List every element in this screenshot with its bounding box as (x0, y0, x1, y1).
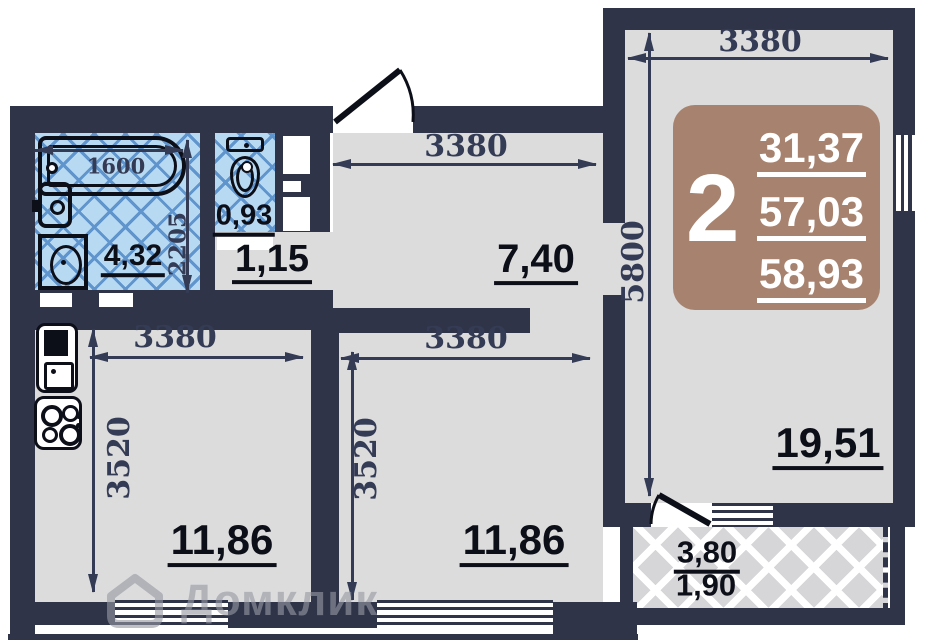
area-label-corridor: 7,40 (494, 239, 578, 285)
summary-badge: 2 31,37 57,03 58,93 (673, 105, 880, 310)
house-logo-icon (103, 572, 167, 630)
wall-segment (603, 503, 651, 527)
area-label-bathroom: 4,32 (101, 241, 165, 277)
bedroom-door-opening (530, 308, 603, 333)
balcony-side-wall (620, 527, 633, 640)
balcony-parapet (633, 608, 890, 625)
total-area-value: 58,93 (757, 253, 866, 303)
wall-segment (10, 106, 35, 638)
dim-label-kitchen-depth: 3520 (105, 416, 135, 500)
area-label-bedroom: 11,86 (460, 519, 569, 567)
wall-segment (8, 634, 638, 640)
area-label-kitchen: 11,86 (168, 519, 277, 567)
bathroom-sink-icon (38, 182, 72, 228)
bedroom-window (377, 600, 553, 625)
stove-icon (34, 396, 82, 450)
wall-niche (40, 293, 72, 307)
balcony-door-icon (645, 478, 715, 530)
wall-segment (893, 211, 915, 527)
vent-opening (283, 197, 310, 231)
kitchen-sink-icon (36, 323, 78, 393)
room-count: 2 (686, 161, 739, 257)
dim-label-corridor: 3380 (424, 132, 508, 162)
wall-segment (773, 503, 915, 527)
dim-line-bedroom-width (341, 357, 590, 360)
dim-label-bathtub: 1600 (87, 156, 145, 177)
toilet-tank-icon (226, 137, 264, 152)
wall-segment (893, 8, 915, 135)
dim-label-living-length: 5800 (619, 220, 649, 304)
wall-segment (603, 8, 625, 223)
entrance-door-icon (325, 58, 420, 133)
area-label-hall: 1,15 (232, 240, 312, 284)
wall-segment (311, 322, 339, 602)
balcony-floor (633, 527, 888, 613)
vent-opening (283, 181, 301, 192)
vent-opening (283, 136, 310, 174)
dim-label-bedroom-width: 3380 (424, 324, 508, 354)
area-value: 57,03 (757, 191, 866, 241)
dim-label-living-width: 3380 (718, 27, 802, 57)
living-room-window (893, 135, 915, 211)
wall-segment (603, 295, 625, 520)
dim-line-kitchen-width (90, 356, 303, 359)
living-area-value: 31,37 (757, 127, 866, 177)
dim-label-bedroom-depth: 3520 (352, 417, 382, 501)
dim-line-kitchen-depth (92, 329, 95, 592)
wall-niche (99, 293, 133, 307)
area-label-living-room: 19,51 (772, 422, 883, 470)
floor-plan: 1600 2205 3380 3380 5800 3380 3520 3380 … (0, 0, 934, 640)
dim-line-bathtub (35, 149, 183, 152)
dim-label-bathroom-depth: 2205 (167, 212, 190, 276)
area-label-balcony-reduced: 1,90 (673, 570, 739, 603)
bath-faucet-icon (46, 162, 58, 174)
area-label-wc: 0,93 (213, 202, 275, 237)
wall-segment (10, 602, 115, 625)
dim-label-kitchen-width: 3380 (133, 323, 217, 353)
watermark: Домклик (103, 572, 378, 630)
balcony-window (712, 503, 773, 527)
washing-machine-icon (38, 234, 88, 290)
watermark-label: Домклик (181, 576, 378, 626)
balcony-side-wall (890, 527, 905, 625)
